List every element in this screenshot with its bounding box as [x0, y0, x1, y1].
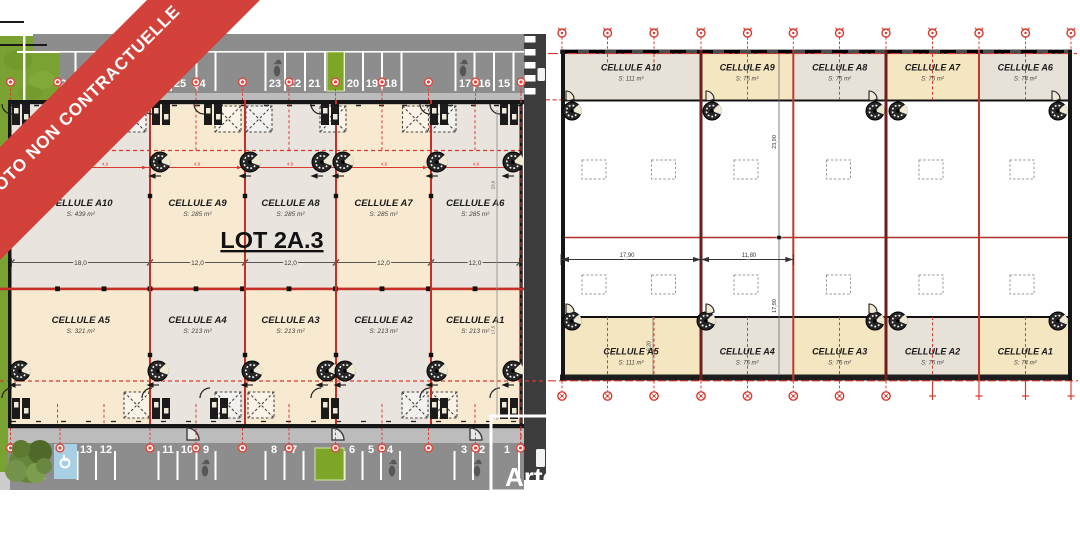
svg-text:CELLULE A6: CELLULE A6	[446, 198, 505, 209]
svg-text:17: 17	[459, 78, 471, 90]
svg-text:2: 2	[479, 444, 485, 456]
svg-text:S: 321 m²: S: 321 m²	[67, 328, 96, 335]
svg-text:4: 4	[387, 444, 394, 456]
svg-text:CELLULE A5: CELLULE A5	[52, 315, 111, 326]
svg-text:18,0: 18,0	[74, 260, 87, 267]
svg-text:12,0: 12,0	[377, 260, 390, 267]
svg-text:13: 13	[80, 444, 92, 456]
svg-text:11,80: 11,80	[742, 253, 757, 259]
svg-text:S: 74 m²: S: 74 m²	[1014, 361, 1038, 367]
svg-text:S: 111 m²: S: 111 m²	[618, 77, 644, 83]
svg-text:17,90: 17,90	[772, 299, 778, 313]
svg-text:S: 285 m²: S: 285 m²	[183, 211, 212, 218]
svg-text:CELLULE A6: CELLULE A6	[998, 63, 1054, 73]
svg-text:S: 213 m²: S: 213 m²	[369, 328, 398, 335]
svg-text:S: 75 m²: S: 75 m²	[828, 361, 852, 367]
svg-text:S: 439 m²: S: 439 m²	[67, 211, 96, 218]
svg-text:CELLULE A4: CELLULE A4	[168, 315, 227, 326]
svg-text:3: 3	[461, 444, 467, 456]
svg-text:CELLULE A9: CELLULE A9	[720, 63, 775, 73]
svg-text:S: 75 m²: S: 75 m²	[828, 77, 852, 83]
svg-text:CELLULE A7: CELLULE A7	[905, 63, 961, 73]
svg-text:CELLULE A5: CELLULE A5	[603, 347, 659, 357]
svg-text:12,0: 12,0	[191, 260, 204, 267]
svg-text:S: 285 m²: S: 285 m²	[369, 211, 398, 218]
svg-text:1: 1	[504, 444, 510, 456]
svg-text:12,0: 12,0	[469, 260, 482, 267]
svg-text:21: 21	[308, 78, 320, 90]
svg-text:CELLULE A2: CELLULE A2	[905, 347, 960, 357]
svg-text:17,90: 17,90	[619, 253, 635, 259]
svg-text:S: 285 m²: S: 285 m²	[461, 211, 490, 218]
svg-text:10: 10	[181, 444, 193, 456]
svg-text:CELLULE A3: CELLULE A3	[261, 315, 320, 326]
svg-text:CELLULE A8: CELLULE A8	[261, 198, 320, 209]
svg-text:19: 19	[366, 78, 378, 90]
svg-text:CELLULE A8: CELLULE A8	[812, 63, 867, 73]
svg-text:S: 213 m²: S: 213 m²	[183, 328, 212, 335]
svg-text:Arte: Arte	[505, 462, 557, 492]
svg-text:5: 5	[368, 444, 374, 456]
svg-text:S: 75 m²: S: 75 m²	[736, 361, 760, 367]
svg-text:4,9: 4,9	[381, 162, 388, 167]
svg-text:S: 74 m²: S: 74 m²	[1014, 77, 1038, 83]
svg-text:15: 15	[498, 78, 510, 90]
svg-text:S: 285 m²: S: 285 m²	[276, 211, 305, 218]
svg-text:18: 18	[385, 78, 397, 90]
svg-text:9: 9	[203, 444, 209, 456]
svg-text:S: 75 m²: S: 75 m²	[736, 77, 760, 83]
svg-text:S: 213 m²: S: 213 m²	[276, 328, 305, 335]
svg-text:12,0: 12,0	[284, 260, 297, 267]
svg-text:20: 20	[347, 78, 359, 90]
svg-text:6: 6	[349, 444, 355, 456]
svg-text:S: 75 m²: S: 75 m²	[921, 361, 945, 367]
svg-text:CELLULE A1: CELLULE A1	[446, 315, 504, 326]
svg-text:CELLULE A9: CELLULE A9	[168, 198, 227, 209]
svg-text:CELLULE A10: CELLULE A10	[601, 63, 661, 73]
svg-text:4,9: 4,9	[194, 162, 201, 167]
svg-text:16: 16	[478, 78, 490, 90]
svg-text:23: 23	[269, 78, 281, 90]
svg-text:S: 111 m²: S: 111 m²	[618, 361, 644, 367]
svg-text:23,90: 23,90	[772, 135, 778, 149]
svg-text:CELLULE A2: CELLULE A2	[354, 315, 413, 326]
svg-text:CELLULE A3: CELLULE A3	[812, 347, 867, 357]
svg-text:CELLULE A4: CELLULE A4	[720, 347, 775, 357]
svg-text:4,9: 4,9	[287, 162, 294, 167]
svg-text:LOT 2A.3: LOT 2A.3	[220, 227, 323, 253]
svg-text:CELLULE A7: CELLULE A7	[354, 198, 413, 209]
svg-text:12: 12	[100, 444, 112, 456]
svg-text:8: 8	[271, 444, 277, 456]
svg-text:4,9: 4,9	[473, 162, 480, 167]
svg-text:S: 213 m²: S: 213 m²	[461, 328, 490, 335]
svg-text:17,5: 17,5	[491, 325, 496, 334]
svg-text:CELLULE A1: CELLULE A1	[998, 347, 1053, 357]
svg-text:4,9: 4,9	[102, 162, 109, 167]
svg-text:S: 75 m²: S: 75 m²	[921, 77, 945, 83]
svg-text:23,9: 23,9	[491, 180, 496, 189]
svg-text:11: 11	[162, 444, 174, 456]
